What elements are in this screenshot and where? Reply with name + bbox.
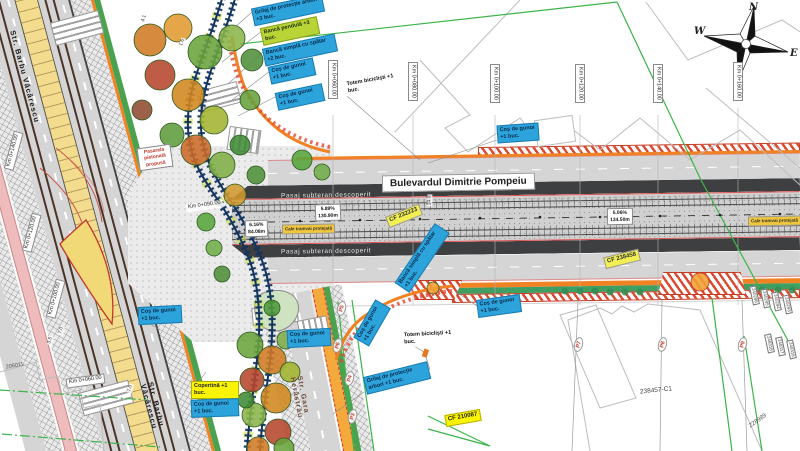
gradient-slope: 6.16% [249,222,263,228]
furniture-label-cos-3: Coș de gunoi +1 buc. [496,123,539,144]
km-marker: Km 0+060.00 [328,60,338,99]
furniture-label-cos-8: Coș de gunoi +1 buc. [191,398,240,417]
traffic-island-yellow [60,220,113,324]
gradient-label-3: 5.06% 134.50m [607,208,633,225]
compass-rose [704,6,788,82]
gradient-label-2: 5.89% 130.90m [315,204,341,222]
underpass-label-south: Pasaj subteran descoperit [281,248,371,256]
tram-way-label-east: Cale tramvai protejată [748,216,800,227]
km-marker: Km 0+160.00 [733,62,743,101]
site-plan: N W E Str. Barbu Văcărescu Str. Barbu Vă… [0,0,800,451]
gradient-length: 134.50m [610,216,630,222]
km-marker: Km 0+100.00 [490,64,500,103]
compass-n: N [749,2,758,13]
compass-w: W [694,26,705,37]
gradient-length: 130.90m [318,212,338,219]
furniture-label-cos-6: Coș de gunoi +1 buc. [287,328,332,348]
gradient-label-1: 6.16% 84.08m [245,220,269,238]
furniture-label-cos-7: Coș de gunoi +1 buc. [138,305,183,325]
copertina-label: Copertină +1 buc. [191,381,239,399]
gradient-slope: 5.89% [321,206,335,212]
street-name-bulevard: Bulevardul Dimitrie Pompeiu [382,173,535,193]
km-marker: Km 0+120.00 [575,64,585,103]
underpass-label-north: Pasaj subteran descoperit [281,192,371,200]
footbridge-label: Pasarela pietonală propusă [137,144,174,171]
km-marker: Km 0+080.00 [408,62,418,101]
totem-label-bottom: Totem bicicliști +1 buc. [402,329,459,348]
compass-e: E [790,48,798,59]
km-marker: Km 0+140.00 [653,64,663,103]
gradient-length: 84.08m [248,228,265,235]
gradient-slope: 5.06% [613,210,627,216]
dimension-label: 14.0 [427,195,432,207]
tram-way-label-west: Cale tramvai protejată [282,224,335,235]
